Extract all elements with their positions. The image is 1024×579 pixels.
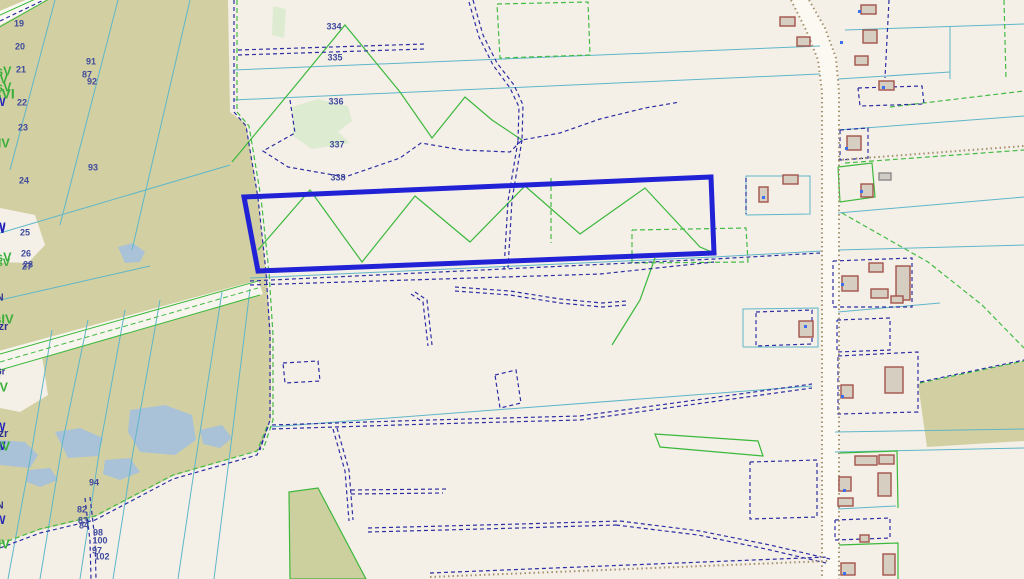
ditch-symbol: W: [0, 515, 6, 527]
parcel-number: 23: [18, 122, 28, 132]
survey-dot: [762, 196, 765, 199]
building: [883, 554, 895, 575]
parcel-number: 93: [88, 162, 98, 172]
parcel-number: 91: [86, 56, 96, 66]
building: [860, 535, 869, 542]
building: [869, 263, 883, 272]
building: [896, 266, 910, 300]
parcel-number: 82: [77, 504, 87, 514]
land-use-label: N: [0, 501, 4, 512]
building: [871, 289, 888, 298]
parcel-number: 84: [79, 520, 89, 530]
land-class-label: LsV: [0, 257, 11, 269]
land-use-label: N: [0, 293, 4, 304]
parcel-number: 24: [19, 175, 29, 185]
survey-dot: [843, 572, 846, 575]
building: [861, 5, 876, 14]
building: [855, 56, 868, 65]
parcel-number: 338: [330, 172, 345, 182]
parcel-number: 19: [14, 18, 24, 28]
ditch-symbol: W: [0, 422, 6, 434]
land-class-label: ŁV: [0, 72, 9, 86]
building: [879, 455, 894, 464]
survey-dot: [841, 395, 844, 398]
building: [863, 30, 877, 43]
parcel-number: 28: [23, 259, 33, 269]
building: [855, 456, 877, 465]
building: [891, 296, 903, 303]
building: [842, 276, 858, 291]
building: [839, 477, 851, 491]
parcel-number: 25: [20, 227, 30, 237]
parcel-number: 337: [329, 139, 344, 149]
parcel-number: 335: [327, 52, 342, 62]
ditch-symbol: W: [0, 224, 6, 236]
survey-dot: [860, 190, 863, 193]
cadastral-map[interactable]: 3343353363373389391928719202122232425262…: [0, 0, 1024, 579]
land-use-label: Gr: [0, 366, 6, 376]
building: [878, 473, 891, 496]
survey-dot: [882, 86, 885, 89]
land-class-label: ŁIV: [0, 438, 10, 453]
parcel-number: 334: [326, 21, 341, 31]
building: [885, 367, 903, 393]
land-class-label: LsIV: [0, 311, 14, 326]
survey-dot: [840, 41, 843, 44]
meadow-sliver: [272, 6, 286, 38]
parcel-number: 94: [89, 477, 99, 487]
building: [783, 175, 798, 184]
survey-dot: [804, 325, 807, 328]
parcel-number: 102: [94, 551, 109, 561]
parcel-number: 22: [17, 97, 27, 107]
building: [879, 173, 891, 180]
land-class-label: ŁIV: [0, 537, 10, 551]
parcel-number: 336: [328, 96, 343, 106]
building: [797, 37, 810, 46]
map-canvas[interactable]: 3343353363373389391928719202122232425262…: [0, 0, 1024, 579]
parcel-number: 100: [92, 535, 107, 545]
survey-dot: [845, 147, 848, 150]
building: [759, 187, 768, 202]
survey-dot: [841, 283, 844, 286]
building: [799, 321, 813, 337]
parcel-number: 21: [16, 64, 26, 74]
building: [838, 498, 853, 506]
land-class-label: ŁIV: [0, 136, 10, 150]
survey-dot: [843, 489, 846, 492]
parcel-number: 87: [82, 69, 92, 79]
building: [879, 81, 894, 90]
parcel-number: 26: [21, 248, 31, 258]
parcel-number: 20: [15, 41, 25, 51]
building: [847, 136, 861, 150]
building: [780, 17, 795, 26]
survey-dot: [858, 10, 861, 13]
land-class-label: ŁV: [0, 380, 9, 394]
